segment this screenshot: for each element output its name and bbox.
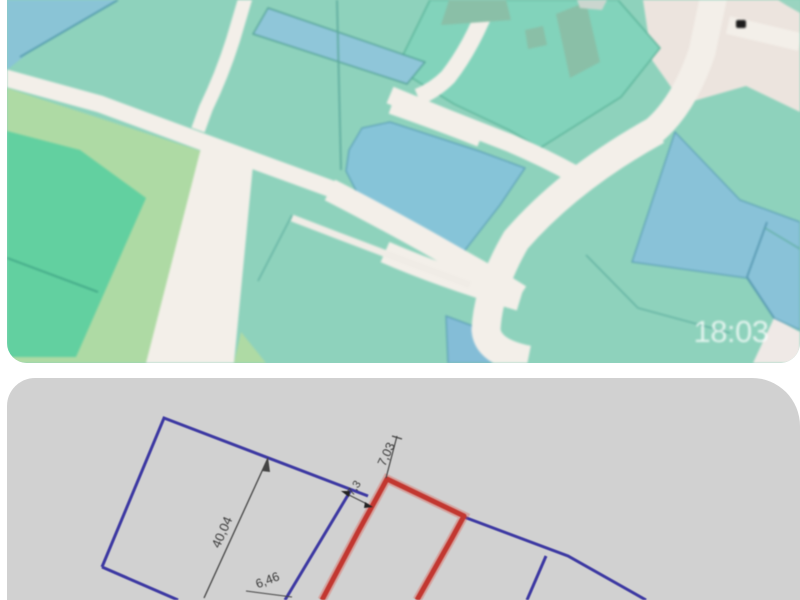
svg-text:40,04: 40,04 <box>208 514 235 550</box>
svg-text:18:03: 18:03 <box>693 314 768 349</box>
svg-text:6,46: 6,46 <box>254 569 282 591</box>
